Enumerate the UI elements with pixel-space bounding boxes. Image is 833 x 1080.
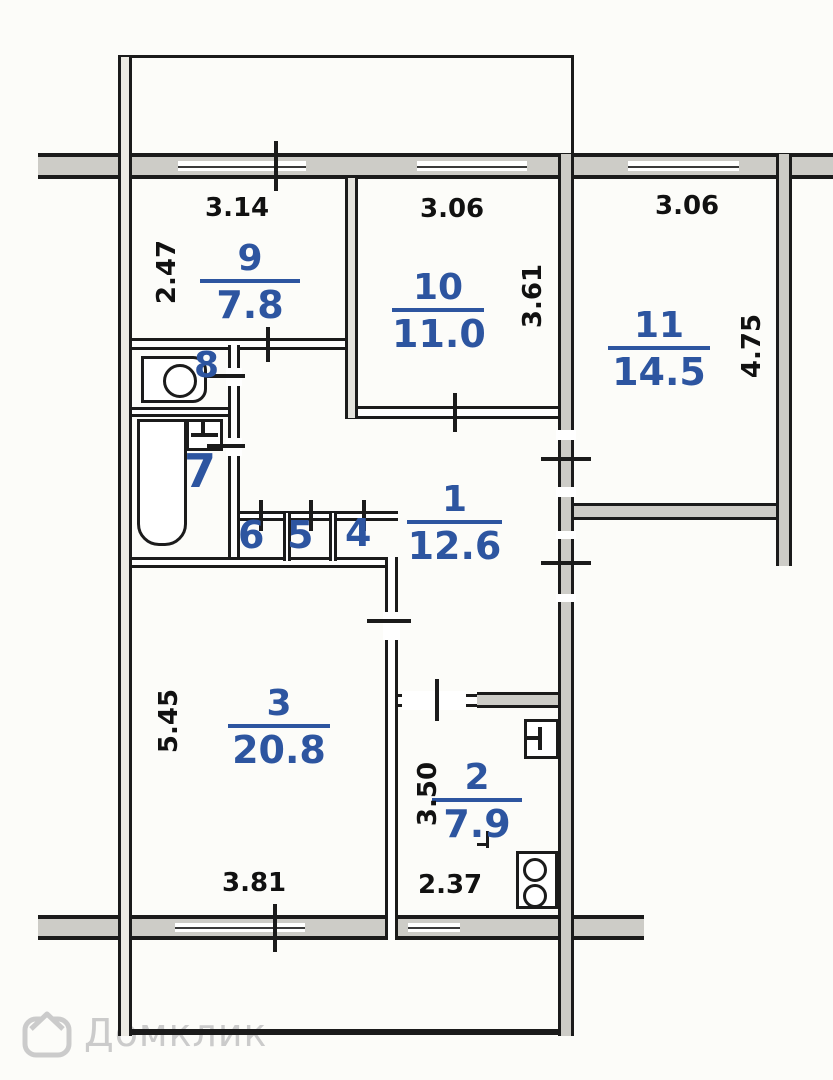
tick-top-wall — [274, 141, 278, 191]
tick-room9-door — [266, 327, 270, 362]
bottom-balcony-edge — [118, 1029, 574, 1035]
room3-area: 20.8 — [228, 731, 330, 769]
door-opening-room11 — [556, 487, 576, 497]
door-opening-kitchen — [402, 691, 466, 710]
window — [417, 161, 527, 171]
dim-room3-depth: 5.45 — [156, 689, 182, 753]
wall-room9-room10 — [345, 178, 358, 418]
room7-number: 7 — [184, 448, 216, 494]
room6-number: 6 — [238, 516, 264, 554]
wall-break — [556, 594, 576, 602]
window — [175, 923, 305, 932]
tick-bottom-wall — [273, 904, 277, 952]
room2-area: 7.9 — [432, 805, 522, 843]
window — [178, 161, 306, 171]
dim-room10-depth: 3.61 — [520, 264, 546, 328]
dim-room11-depth: 4.75 — [739, 314, 765, 378]
tick-hall-wall — [541, 561, 591, 565]
wall-wc-bath-divider — [132, 407, 240, 417]
room11-label: 11 14.5 — [608, 308, 710, 391]
door-opening-room11 — [556, 430, 576, 440]
dim-room3-width: 3.81 — [222, 870, 286, 896]
dim-room9-depth: 2.47 — [154, 240, 180, 304]
room1-number: 1 — [407, 482, 502, 518]
room2-label: 2 7.9 — [432, 760, 522, 843]
room9-area: 7.8 — [200, 286, 300, 324]
wall-closet5-closet4 — [329, 513, 337, 561]
room1-label: 1 12.6 — [407, 482, 502, 565]
room9-number: 9 — [200, 241, 300, 277]
room1-area: 12.6 — [407, 527, 502, 565]
wall-room3-top — [118, 557, 398, 568]
sink-mark — [538, 727, 542, 750]
tick-room10-door — [453, 393, 457, 432]
wall-kitchen-top-thick — [477, 692, 558, 708]
room4-number: 4 — [345, 514, 371, 552]
domclick-house-icon — [20, 1006, 74, 1060]
room3-number: 3 — [228, 686, 330, 722]
stove-burner-icon — [523, 884, 547, 908]
room3-label: 3 20.8 — [228, 686, 330, 769]
toilet-mark — [191, 433, 218, 437]
room11-number: 11 — [608, 308, 710, 344]
floor-plan: Домклик — [0, 0, 833, 1080]
stove-burner-icon — [523, 858, 547, 882]
dim-room9-width: 3.14 — [205, 195, 269, 221]
dim-room10-width: 3.06 — [420, 196, 484, 222]
room11-area: 14.5 — [608, 353, 710, 391]
room5-number: 5 — [287, 516, 313, 554]
room10-area: 11.0 — [392, 315, 484, 353]
top-exterior-wall — [38, 153, 833, 179]
tick-room11-door — [541, 457, 591, 461]
wall-left-exterior — [118, 57, 132, 1036]
dim-room11-width: 3.06 — [655, 193, 719, 219]
window — [628, 161, 739, 171]
room2-number: 2 — [432, 760, 522, 796]
wall-break — [556, 531, 576, 539]
room8-number: 8 — [194, 348, 219, 384]
door-opening-room3 — [383, 612, 400, 640]
room10-label: 10 11.0 — [392, 270, 484, 353]
room9-label: 9 7.8 — [200, 241, 300, 324]
tick-room3-door — [367, 619, 411, 623]
dim-room2-depth: 3.50 — [415, 762, 441, 826]
wall-room10-bottom — [345, 406, 574, 419]
top-balcony — [118, 55, 574, 155]
dim-room2-width: 2.37 — [418, 872, 482, 898]
wall-room11-right — [776, 154, 792, 566]
tick-kitchen-door — [435, 679, 439, 721]
window — [408, 923, 460, 932]
wall-room11-bottom — [566, 503, 792, 520]
washbasin-bowl-icon — [163, 364, 197, 398]
room10-number: 10 — [392, 270, 484, 306]
bathtub-icon — [137, 419, 187, 546]
